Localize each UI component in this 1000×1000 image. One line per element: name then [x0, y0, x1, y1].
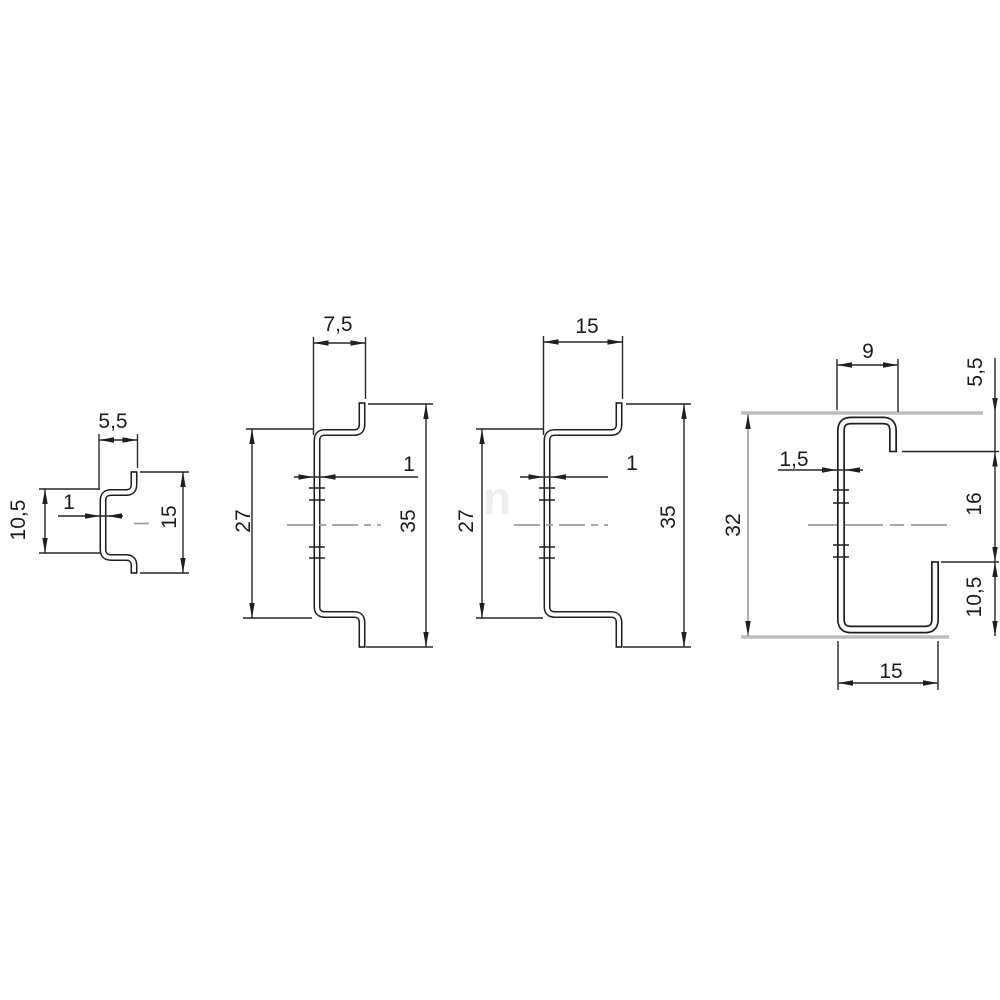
dim-label-depth: 7,5: [323, 313, 352, 336]
dim-label-overall-width: 35: [657, 505, 680, 528]
dim-label-depth: 5,5: [98, 410, 127, 433]
dim-label-bottom-edge: 10,5: [963, 577, 986, 618]
dim-label-thickness: 1: [626, 452, 638, 475]
dim-label-inner-width: 10,5: [7, 500, 30, 541]
dim-label-bottom-depth: 15: [879, 660, 902, 683]
din-rail-cross-sections-drawing: n 5,5 1 10,5 15 7,5 1 27 35: [0, 0, 1000, 1000]
dim-label-thickness: 1,5: [779, 448, 808, 471]
dim-label-thickness: 1: [403, 453, 415, 476]
dim-label-overall-width: 35: [397, 509, 420, 532]
dim-label-opening: 16: [963, 492, 986, 515]
dim-label-top-edge: 5,5: [964, 357, 987, 386]
drawing-page: n 5,5 1 10,5 15 7,5 1 27 35: [0, 0, 1000, 1000]
watermark-artifact: n: [483, 472, 511, 524]
dim-label-overall-width: 32: [722, 513, 745, 536]
dim-label-top-depth: 9: [862, 340, 874, 363]
dim-label-inner-width: 27: [455, 509, 478, 532]
dim-label-overall-width: 15: [158, 505, 181, 528]
dim-label-depth: 15: [575, 315, 598, 338]
dim-label-thickness: 1: [63, 491, 75, 514]
